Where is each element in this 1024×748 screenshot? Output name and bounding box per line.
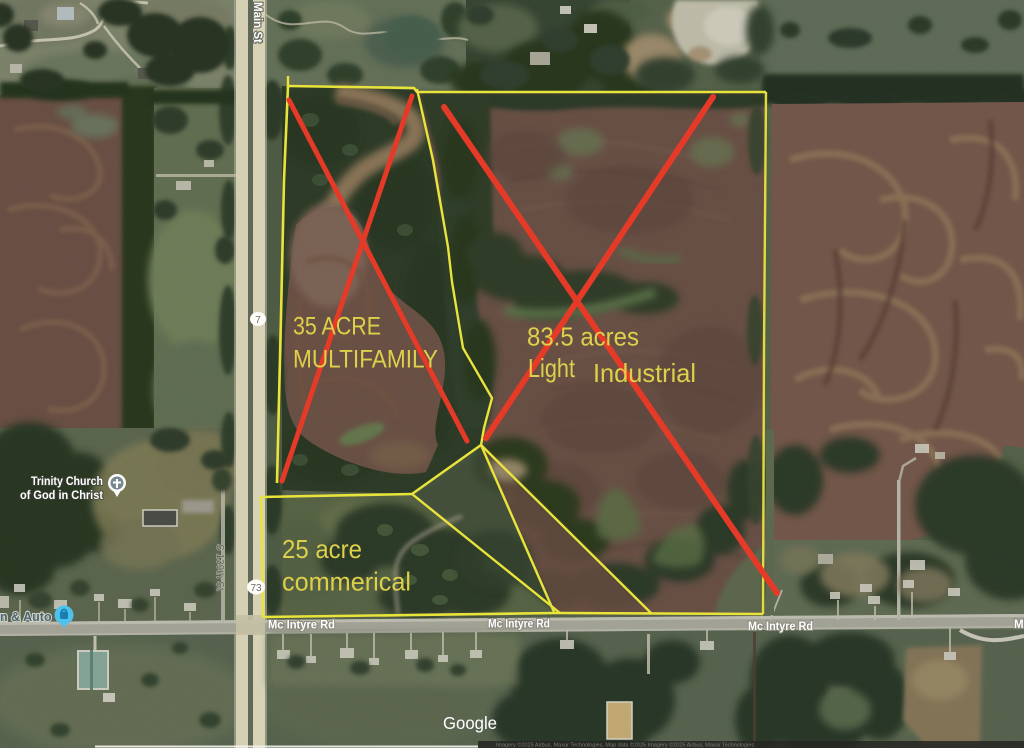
svg-text:MULTIFAMILY: MULTIFAMILY (293, 346, 438, 374)
svg-text:Imagery ©2025 Airbus, Maxar Te: Imagery ©2025 Airbus, Maxar Technologies… (496, 742, 754, 748)
svg-text:25 acre: 25 acre (282, 534, 362, 564)
svg-text:83.5 acres: 83.5 acres (527, 322, 639, 352)
svg-text:commerical: commerical (282, 567, 411, 597)
svg-text:Mc: Mc (1014, 619, 1024, 631)
svg-text:7: 7 (255, 315, 261, 326)
svg-text:n & Auto: n & Auto (0, 610, 52, 624)
svg-text:Trinity Church: Trinity Church (31, 474, 103, 488)
svg-text:Mc Intyre Rd: Mc Intyre Rd (268, 620, 335, 632)
svg-text:Main St: Main St (251, 2, 263, 43)
svg-text:Google: Google (443, 713, 497, 733)
svg-text:Mc Intyre Rd: Mc Intyre Rd (488, 619, 550, 631)
svg-text:Mc Intyre Rd: Mc Intyre Rd (748, 621, 813, 633)
svg-text:Light: Light (528, 353, 576, 383)
svg-text:of God in Christ: of God in Christ (20, 488, 103, 502)
svg-text:35 ACRE: 35 ACRE (293, 313, 381, 341)
svg-text:73: 73 (250, 583, 262, 594)
svg-text:Industrial: Industrial (593, 358, 696, 388)
svg-text:S 139th St: S 139th St (214, 544, 225, 591)
